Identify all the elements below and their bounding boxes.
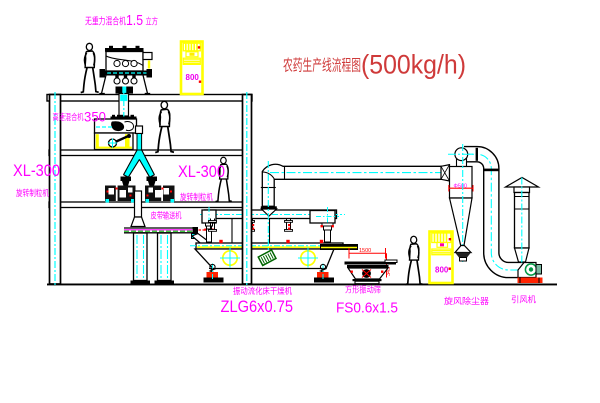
svg-text:XL-300: XL-300 xyxy=(178,163,225,181)
svg-text:立方: 立方 xyxy=(146,16,159,27)
svg-text:无重力混合机: 无重力混合机 xyxy=(85,16,126,28)
svg-text:ZLG6x0.75: ZLG6x0.75 xyxy=(221,298,294,316)
svg-text:旋转制粒机: 旋转制粒机 xyxy=(180,192,213,202)
svg-text:1500: 1500 xyxy=(359,248,371,254)
svg-text:高速混合机: 高速混合机 xyxy=(53,112,84,122)
svg-text:800: 800 xyxy=(435,266,449,275)
svg-text:旋风除尘器: 旋风除尘器 xyxy=(444,296,490,306)
svg-text:FS0.6x1.5: FS0.6x1.5 xyxy=(336,300,398,317)
svg-text:Φ500: Φ500 xyxy=(454,183,468,189)
svg-text:引风机: 引风机 xyxy=(511,295,536,305)
svg-text:皮带输送机: 皮带输送机 xyxy=(151,211,182,221)
svg-text:350: 350 xyxy=(84,110,106,125)
svg-text:农药生产线流程图: 农药生产线流程图 xyxy=(283,57,361,75)
svg-text:1.5: 1.5 xyxy=(126,12,143,29)
svg-text:旋转制粒机: 旋转制粒机 xyxy=(16,188,49,198)
svg-text:XL-300: XL-300 xyxy=(13,162,60,180)
svg-text:800: 800 xyxy=(186,73,200,82)
svg-text:振动流化床干燥机: 振动流化床干燥机 xyxy=(233,286,292,296)
svg-text:方形振动筛: 方形振动筛 xyxy=(345,285,381,295)
svg-text:(500kg/h): (500kg/h) xyxy=(361,50,466,80)
